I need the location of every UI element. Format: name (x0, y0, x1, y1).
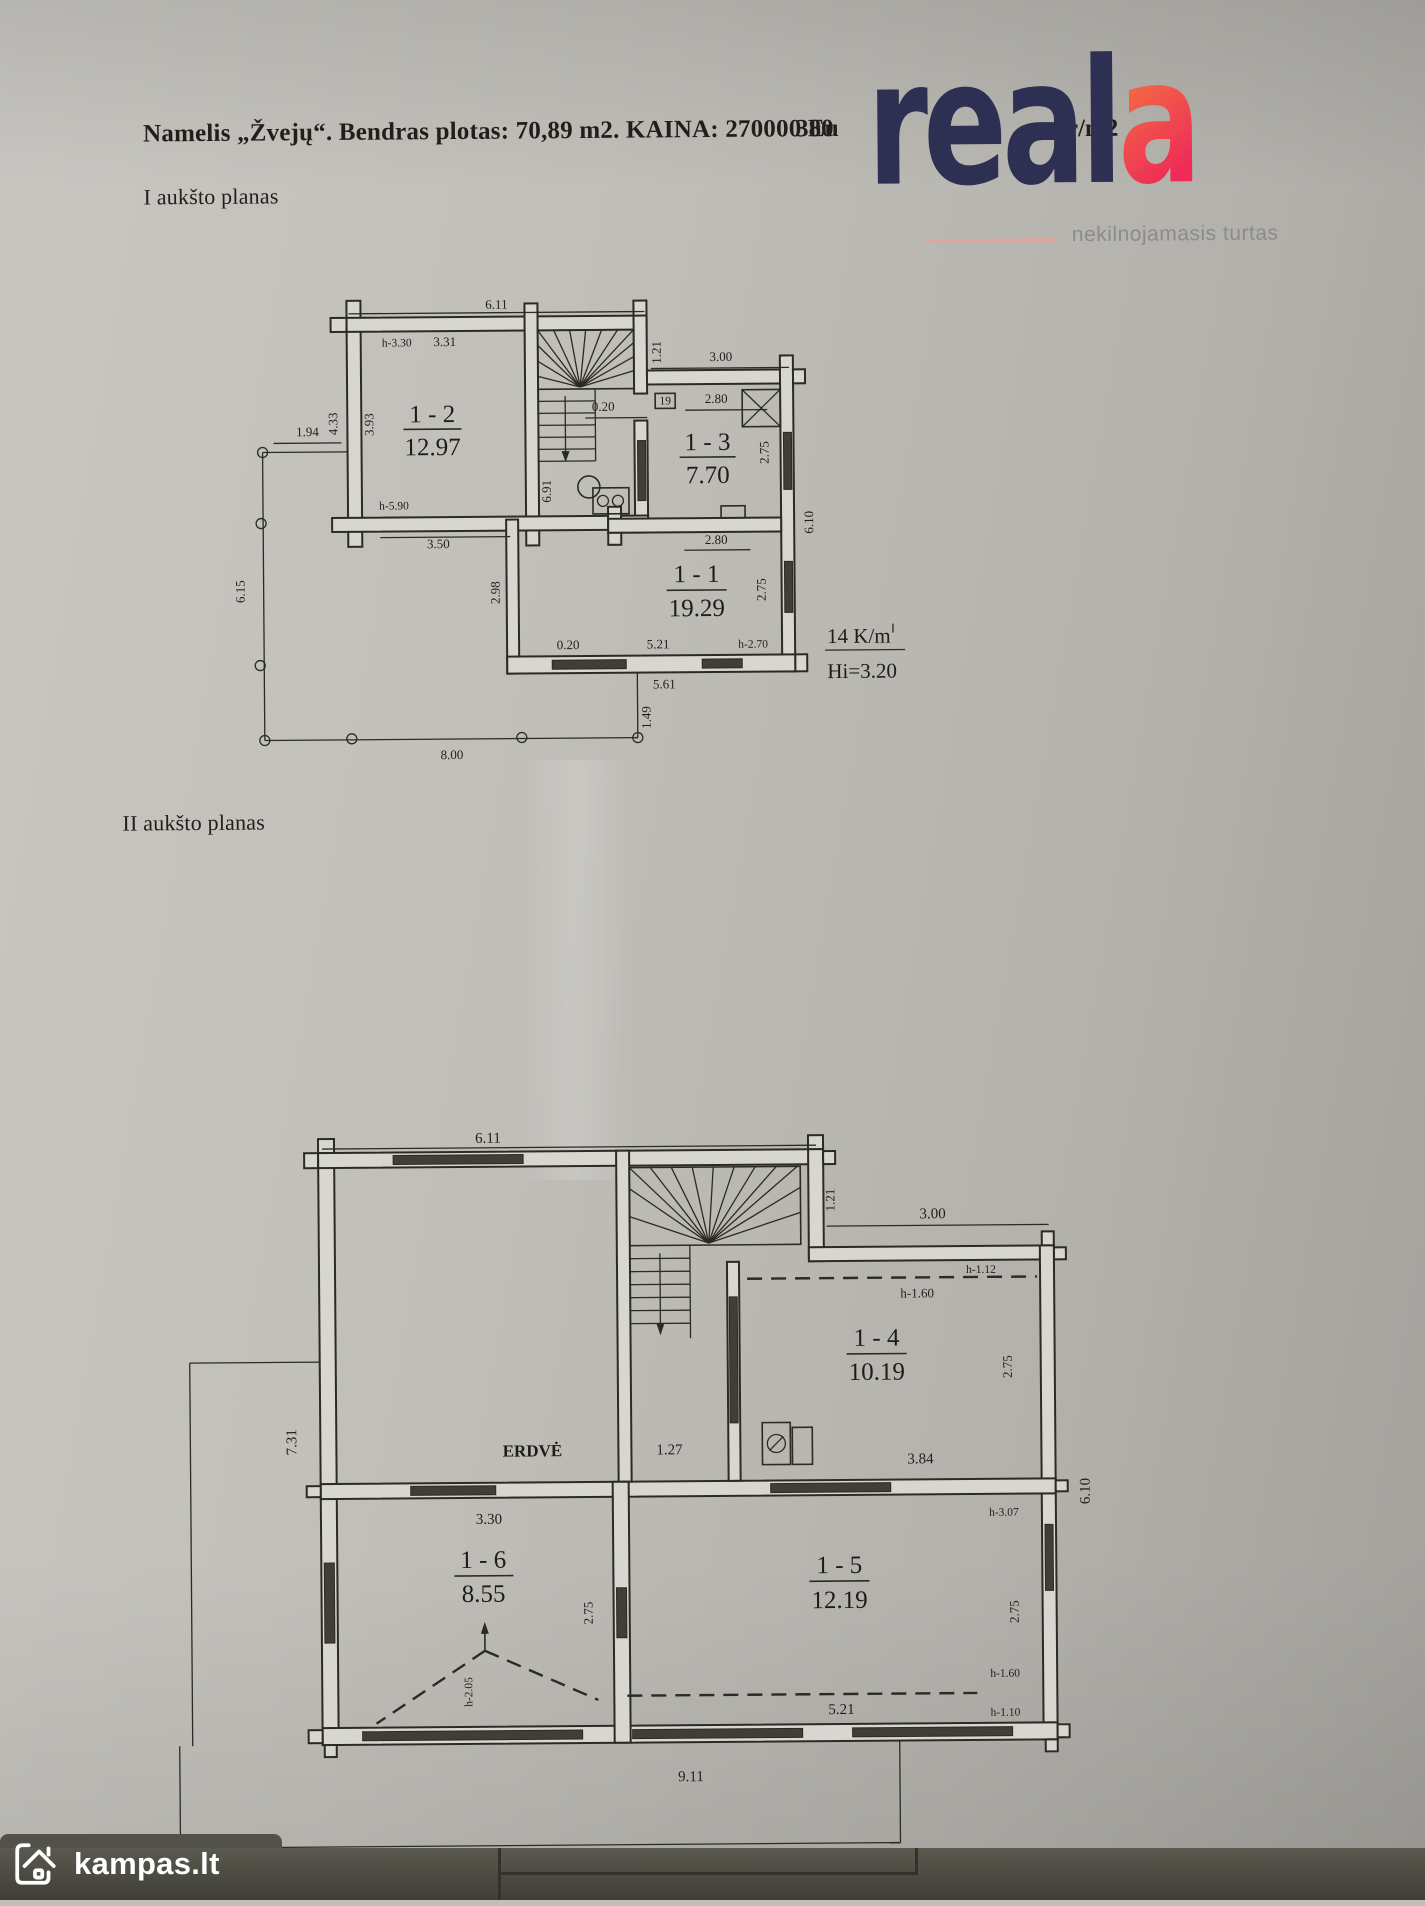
floor2-stairs (629, 1166, 801, 1338)
floor2-fixtures (322, 1143, 1052, 1724)
dim-298: 2.98 (488, 581, 503, 604)
floor1-plan-drawing: 6.11 h-3.30 3.31 1 - 2 12.97 1.94 4.33 3… (226, 288, 930, 773)
dim-r4-height: 2.75 (1000, 1355, 1015, 1378)
dim-r6-width: 3.30 (476, 1512, 502, 1528)
dim-bottom-020: 0.20 (557, 637, 580, 652)
floor1-heading: I aukšto planas (143, 183, 278, 210)
reala-tagline: nekilnojamasis turtas (1072, 222, 1279, 248)
dim-top: 6.11 (485, 297, 507, 312)
dim-r2-width: 3.31 (433, 334, 456, 349)
dim-433: 4.33 (325, 413, 340, 436)
room-1-6-id: 1 - 6 (460, 1547, 506, 1574)
dim-deck-width: 9.11 (678, 1769, 704, 1785)
room-1-2-id: 1 - 2 (409, 401, 455, 428)
cabinet-icon (792, 1427, 812, 1464)
room-1-2-area: 12.97 (404, 434, 460, 461)
room-1-3-area: 7.70 (686, 462, 730, 489)
dim-r1-height: 2.75 (754, 578, 769, 601)
dim-bottom-561: 5.61 (653, 676, 676, 691)
room-1-3-id: 1 - 3 (684, 429, 730, 456)
room-1-4-id: 1 - 4 (854, 1325, 901, 1352)
dim-393: 3.93 (361, 413, 376, 436)
reala-wordmark: real (866, 22, 1119, 225)
dim-350: 3.50 (427, 536, 450, 551)
note-line2: Hi=3.20 (827, 659, 897, 684)
tile-grout-line (915, 1848, 918, 1874)
document-title: Namelis „Žvejų“. Bendras plotas: 70,89 m… (143, 115, 839, 148)
stove-burner-icon (578, 476, 600, 498)
dim-r2-height: h-3.30 (382, 337, 412, 349)
floor2-walls (304, 1133, 1070, 1757)
dim-r3-width: 2.80 (705, 391, 728, 406)
room-1-5-area: 12.19 (811, 1587, 867, 1614)
dim-r5-height: 2.75 (1007, 1600, 1022, 1623)
kampas-house-icon (12, 1840, 60, 1888)
room-1-6-area: 8.55 (462, 1581, 506, 1608)
dim-r6-height: 2.75 (581, 1602, 596, 1625)
room-1-4-area: 10.19 (849, 1359, 905, 1386)
room-1-5-id: 1 - 5 (816, 1552, 862, 1579)
roof-slope-right (485, 1650, 598, 1701)
dim-r5-h110: h-1.10 (991, 1707, 1021, 1719)
dim-bottom-521: 5.21 (647, 636, 670, 651)
door-number: 19 (659, 395, 671, 407)
dim-h590: h-5.90 (379, 500, 409, 512)
floor1-dimension-lines (272, 309, 905, 654)
dim-left-731: 7.31 (284, 1429, 300, 1455)
floor1-stairs (538, 330, 635, 463)
room-1-1-area: 19.29 (669, 595, 725, 622)
dim-r5-h307: h-3.07 (989, 1507, 1019, 1519)
room-1-1-id: 1 - 1 (674, 561, 720, 588)
kampas-watermark: kampas.lt (12, 1840, 220, 1888)
dim-r5-width: 5.21 (828, 1702, 854, 1718)
dim-right-610: 6.10 (1078, 1478, 1094, 1504)
dim-194: 1.94 (296, 424, 319, 439)
kampas-label: kampas.lt (74, 1846, 220, 1882)
floor2-heading: II aukšto planas (122, 810, 265, 837)
reala-wordmark-accent: a (1117, 21, 1197, 223)
open-space-label: ERDVĖ (503, 1441, 563, 1460)
dim-r5-h160: h-1.60 (990, 1668, 1020, 1680)
dim-door-offset: 0.20 (592, 399, 615, 414)
note-line1: 14 K/m (827, 624, 891, 648)
dim-691: 6.91 (539, 480, 554, 503)
dim-r6-h205: h-2.05 (463, 1677, 475, 1707)
dim-r1-width: 2.80 (705, 532, 728, 547)
dim-top-right: 3.00 (919, 1206, 945, 1222)
price-fragment: 380 (796, 115, 834, 143)
dim-stairs-121: 1.21 (649, 341, 664, 364)
dim-stairs-121: 1.21 (822, 1189, 837, 1212)
floor2-plan-drawing: 6.11 1.21 3.00 h-1.12 h-1.60 1 - 4 10.19… (158, 1125, 1114, 1877)
dim-r4-width: 3.84 (907, 1451, 934, 1467)
dim-h112: h-1.12 (966, 1264, 996, 1276)
dim-right-610: 6.10 (801, 511, 816, 534)
floor1-walls (330, 297, 807, 675)
dim-deck-width: 8.00 (441, 747, 464, 762)
dim-149: 1.49 (639, 706, 654, 729)
dim-corridor: 1.27 (656, 1442, 683, 1458)
dim-h160: h-1.60 (900, 1285, 934, 1300)
door-leaf-icon (721, 506, 745, 518)
dim-top-right: 3.00 (709, 349, 732, 364)
scanned-floor-plan-document: Namelis „Žvejų“. Bendras plotas: 70,89 m… (0, 0, 1425, 1906)
reala-logo: reala (866, 36, 1197, 211)
reala-tagline-rule (926, 238, 1056, 242)
dim-bottom-h270: h-2.70 (738, 639, 768, 651)
dim-deck-height: 6.15 (233, 580, 248, 603)
dim-r3-height: 2.75 (756, 441, 771, 464)
floor1-deck-outline (254, 445, 643, 746)
tile-grout-line (498, 1872, 918, 1875)
dim-top: 6.11 (475, 1131, 501, 1147)
slope-arrow-icon (481, 1622, 489, 1634)
